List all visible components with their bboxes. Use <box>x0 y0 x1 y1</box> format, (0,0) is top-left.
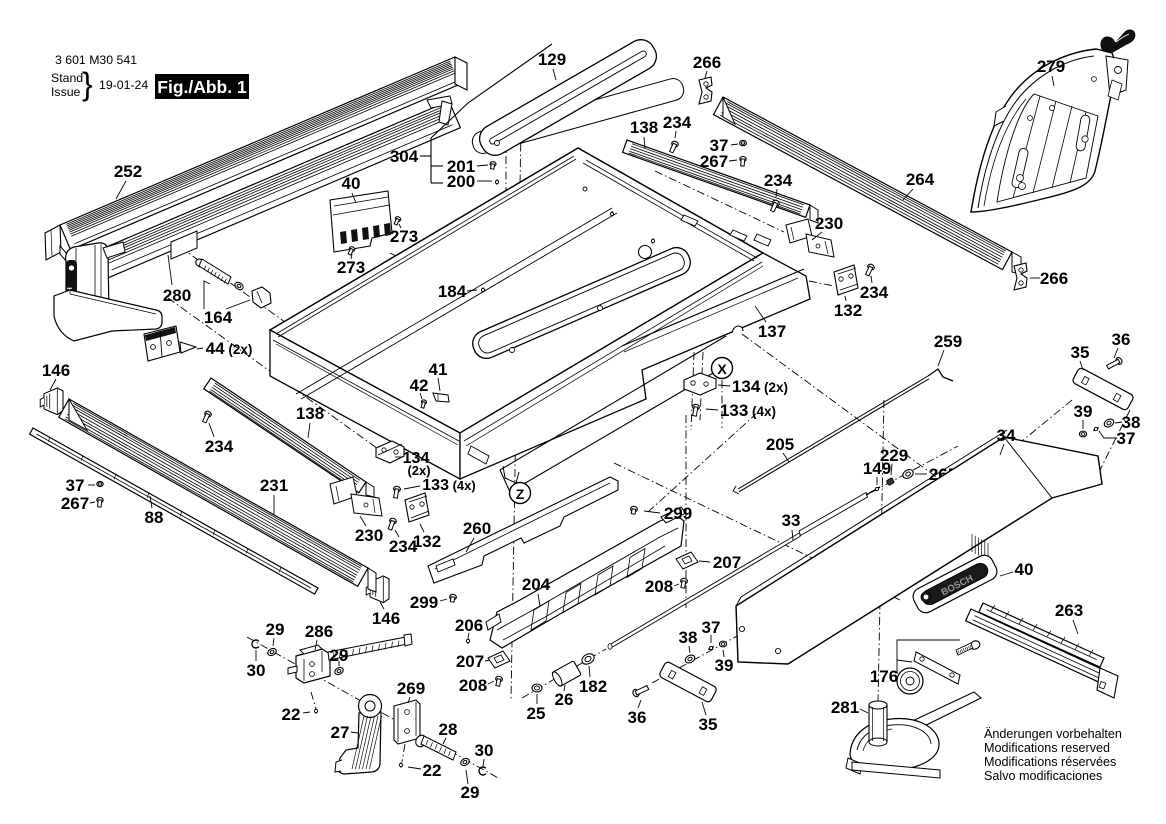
svg-text:Änderungen vorbehalten: Änderungen vorbehalten <box>984 727 1122 741</box>
svg-text:259: 259 <box>934 332 962 351</box>
svg-text:229: 229 <box>880 446 908 465</box>
svg-text:286: 286 <box>305 622 333 641</box>
svg-text:281: 281 <box>831 698 859 717</box>
svg-text:(2x): (2x) <box>407 463 430 478</box>
svg-text:269: 269 <box>397 679 425 698</box>
svg-text:208: 208 <box>645 577 673 596</box>
svg-text:146: 146 <box>42 361 70 380</box>
svg-text:234: 234 <box>860 283 889 302</box>
svg-text:234: 234 <box>764 171 793 190</box>
svg-text:129: 129 <box>538 50 566 69</box>
svg-text:40: 40 <box>1015 560 1034 579</box>
svg-text:39: 39 <box>1074 402 1093 421</box>
svg-text:234: 234 <box>663 113 692 132</box>
svg-text:200: 200 <box>447 172 475 191</box>
svg-text:206: 206 <box>455 616 483 635</box>
svg-text:41: 41 <box>429 360 448 379</box>
svg-text:164: 164 <box>204 308 233 327</box>
svg-text:273: 273 <box>337 258 365 277</box>
svg-text:231: 231 <box>260 476 288 495</box>
svg-text:279: 279 <box>1037 57 1065 76</box>
svg-text:299: 299 <box>410 593 438 612</box>
svg-text:230: 230 <box>815 214 843 233</box>
svg-text:33: 33 <box>782 511 801 530</box>
svg-text:37: 37 <box>1117 429 1136 448</box>
svg-text:}: } <box>82 66 93 102</box>
svg-text:29: 29 <box>266 620 285 639</box>
svg-text:132: 132 <box>413 532 441 551</box>
svg-text:208: 208 <box>459 676 487 695</box>
svg-text:234: 234 <box>205 437 234 456</box>
svg-text:252: 252 <box>114 162 142 181</box>
svg-text:42: 42 <box>410 376 429 395</box>
svg-text:35: 35 <box>1071 343 1090 362</box>
svg-text:40: 40 <box>342 174 361 193</box>
svg-text:299: 299 <box>664 504 692 523</box>
svg-text:36: 36 <box>628 708 647 727</box>
svg-text:134 (2x): 134 (2x) <box>732 377 788 396</box>
svg-text:207: 207 <box>456 652 484 671</box>
svg-text:36: 36 <box>1112 330 1131 349</box>
svg-text:263: 263 <box>1055 601 1083 620</box>
svg-text:184: 184 <box>438 282 467 301</box>
svg-text:44 (2x): 44 (2x) <box>206 339 253 358</box>
svg-text:3 601 M30 541: 3 601 M30 541 <box>55 53 137 67</box>
svg-text:273: 273 <box>390 227 418 246</box>
svg-text:28: 28 <box>439 720 458 739</box>
svg-text:280: 280 <box>163 286 191 305</box>
svg-text:176: 176 <box>870 667 898 686</box>
svg-text:Salvo modificaciones: Salvo modificaciones <box>984 769 1102 783</box>
svg-text:Stand: Stand <box>51 71 83 85</box>
svg-text:267: 267 <box>61 494 89 513</box>
svg-text:Fig./Abb. 1: Fig./Abb. 1 <box>157 77 247 97</box>
svg-text:37: 37 <box>702 618 721 637</box>
svg-text:146: 146 <box>372 609 400 628</box>
svg-text:138: 138 <box>296 404 324 423</box>
svg-text:88: 88 <box>145 508 164 527</box>
svg-text:204: 204 <box>522 575 551 594</box>
svg-text:137: 137 <box>758 322 786 341</box>
svg-text:34: 34 <box>997 426 1016 445</box>
svg-text:205: 205 <box>766 435 794 454</box>
svg-text:266: 266 <box>1040 269 1068 288</box>
svg-text:133 (4x): 133 (4x) <box>720 401 776 420</box>
svg-text:30: 30 <box>247 661 266 680</box>
svg-text:19-01-24: 19-01-24 <box>99 78 148 92</box>
svg-text:264: 264 <box>906 170 935 189</box>
svg-text:267: 267 <box>700 152 728 171</box>
svg-text:207: 207 <box>713 553 741 572</box>
svg-text:132: 132 <box>834 301 862 320</box>
svg-text:30: 30 <box>475 741 494 760</box>
svg-text:22: 22 <box>423 761 442 780</box>
svg-text:133 (4x): 133 (4x) <box>422 477 475 494</box>
svg-text:X: X <box>717 361 727 377</box>
svg-text:266: 266 <box>693 53 721 72</box>
svg-text:27: 27 <box>331 723 350 742</box>
svg-text:Z: Z <box>516 486 525 502</box>
svg-text:230: 230 <box>355 526 383 545</box>
svg-text:Issue: Issue <box>51 85 81 99</box>
svg-text:22: 22 <box>282 705 301 724</box>
svg-text:38: 38 <box>679 628 698 647</box>
svg-text:138: 138 <box>630 118 658 137</box>
svg-text:260: 260 <box>463 519 491 538</box>
svg-text:304: 304 <box>390 147 419 166</box>
svg-text:37: 37 <box>66 476 85 495</box>
svg-text:29: 29 <box>461 783 480 802</box>
svg-text:182: 182 <box>579 677 607 696</box>
svg-text:26: 26 <box>555 690 574 709</box>
svg-text:35: 35 <box>699 715 718 734</box>
svg-text:Modifications reserved: Modifications reserved <box>984 741 1110 755</box>
svg-text:Modifications réservées: Modifications réservées <box>984 755 1116 769</box>
svg-text:25: 25 <box>527 704 546 723</box>
svg-text:39: 39 <box>715 656 734 675</box>
